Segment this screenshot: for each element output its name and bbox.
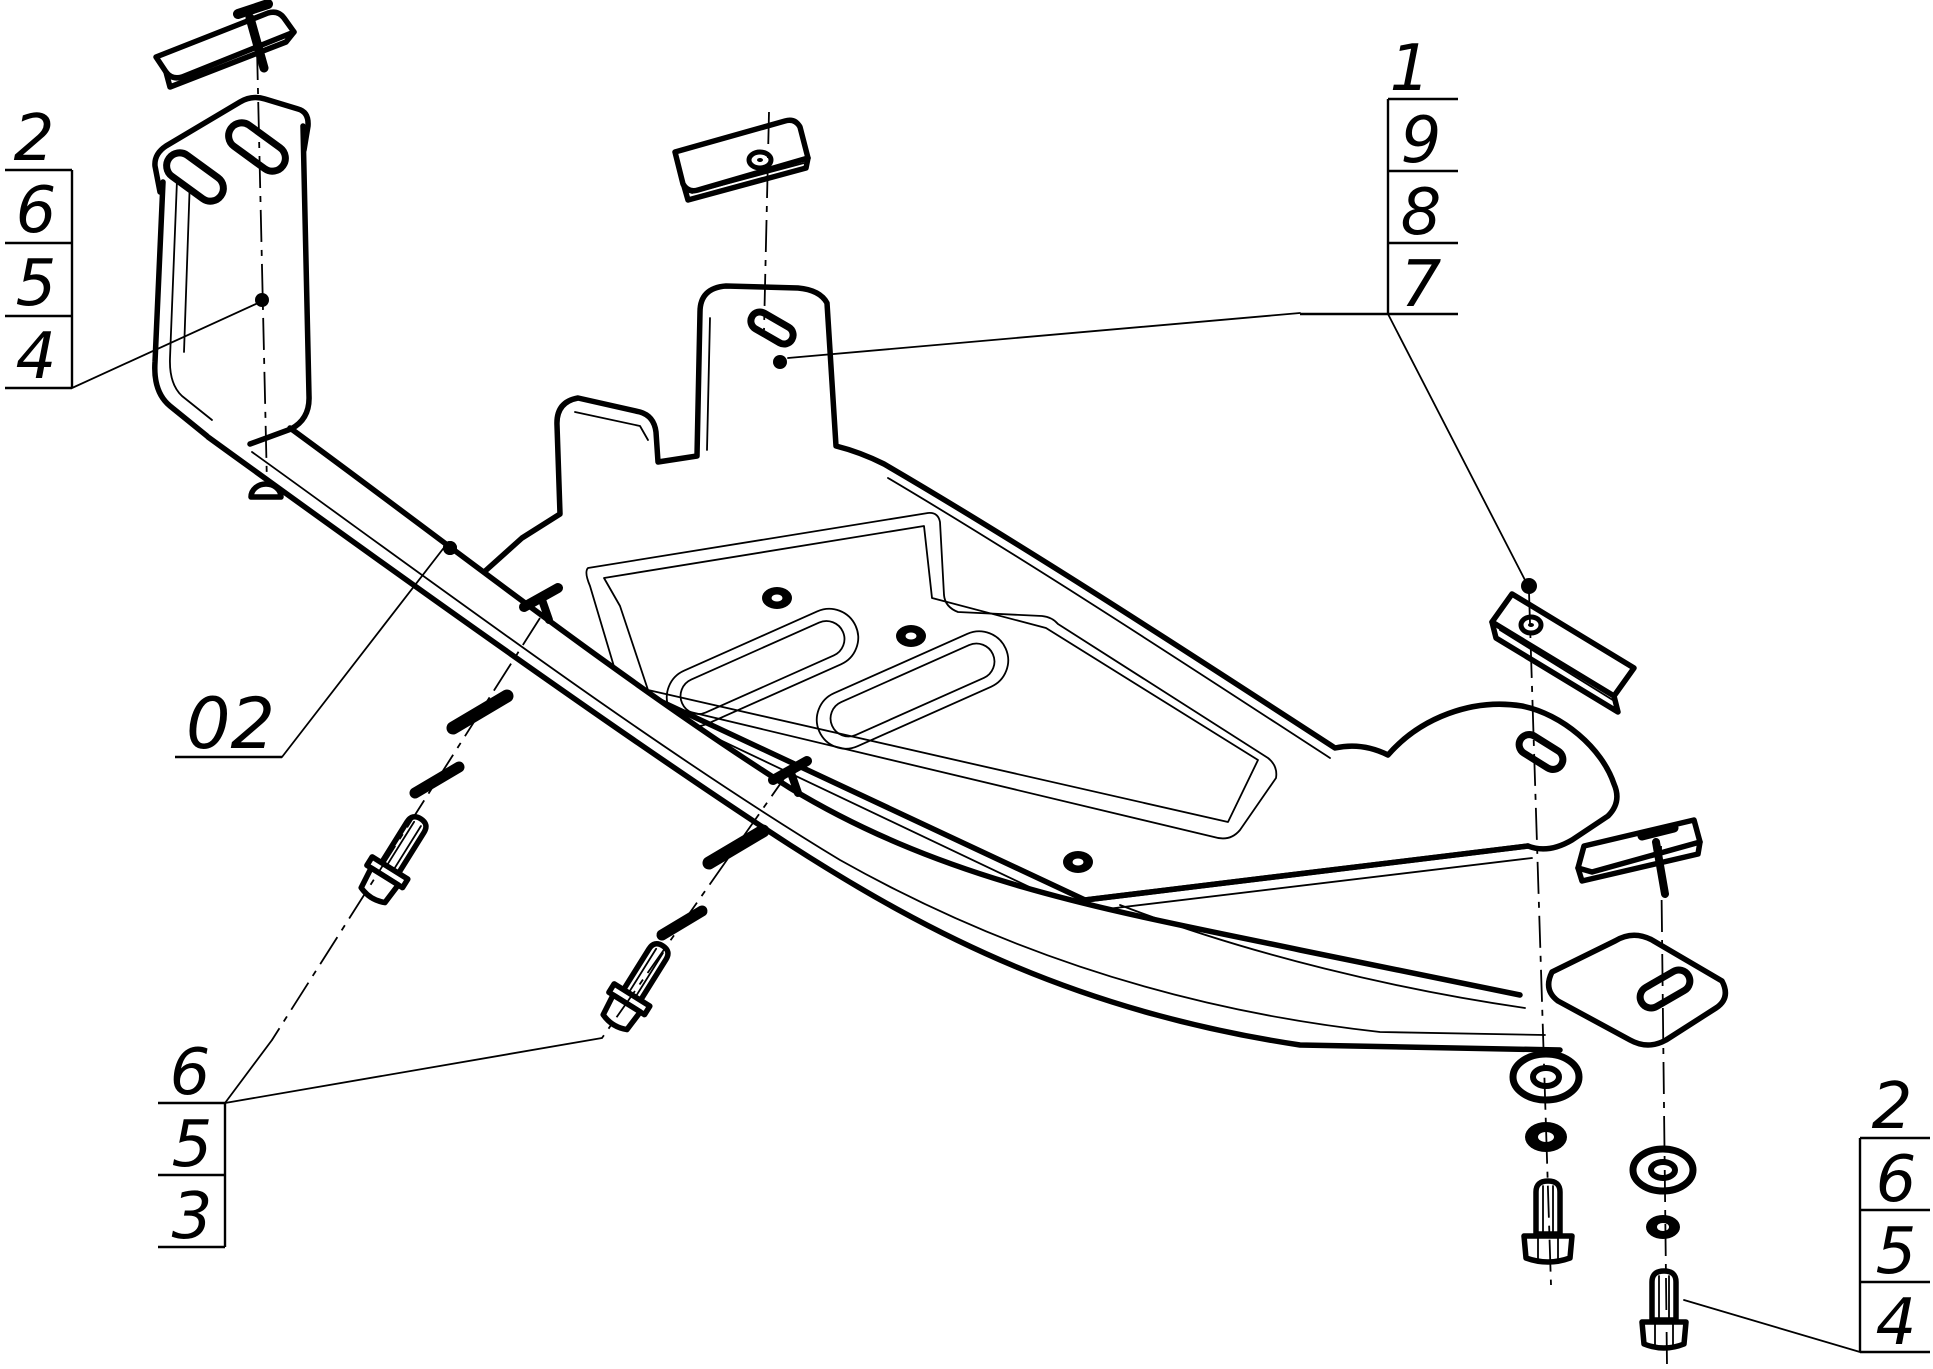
callout-number: 2 (1872, 1070, 1913, 1144)
right-strip-bolt-point (1521, 578, 1537, 594)
assembly-label-text: 02 (186, 683, 275, 765)
callout-number: 6 (170, 1036, 211, 1110)
callout-table-bottom-left: 6 5 3 (158, 1036, 225, 1254)
flat-washer (1633, 1149, 1693, 1191)
callout-number: 6 (1876, 1143, 1917, 1217)
callout-number: 4 (16, 320, 57, 394)
callout-number: 2 (14, 102, 55, 176)
rail-stud-dome (251, 484, 281, 497)
leader-top-left (72, 303, 258, 388)
plate-hole (1063, 851, 1093, 873)
skid-plate-outline (477, 286, 1617, 900)
callout-number: 8 (1401, 176, 1442, 250)
assembly-leader-point (443, 541, 457, 555)
callout-table-top-left: 2 6 5 4 (5, 102, 72, 394)
callout-table-bottom-right: 2 6 5 4 (1860, 1070, 1930, 1360)
left-bracket-inner-line (170, 180, 212, 420)
callout-number: 6 (16, 174, 57, 248)
plate-hole (762, 587, 792, 609)
skid-plate (477, 286, 1617, 912)
callout-number: 4 (1876, 1286, 1917, 1360)
callout-number: 5 (16, 247, 57, 321)
callout-number: 9 (1401, 104, 1442, 178)
clamp-strip-right (1492, 578, 1634, 712)
rail-end-flange (1549, 935, 1726, 1045)
strip-hole (1521, 617, 1541, 633)
plate-hole (896, 625, 926, 647)
leader-top-right-b (1388, 314, 1526, 582)
leader-bottom-left-b (225, 1038, 602, 1103)
flat-washer (1513, 1054, 1579, 1100)
leader-bottom-right (1684, 1300, 1860, 1352)
spring-washer (1646, 1215, 1680, 1239)
left-bracket-right-edge (250, 126, 309, 444)
leader-assembly-label (282, 545, 446, 757)
axis-left-bracket (257, 48, 267, 485)
fastener-set (596, 831, 763, 1036)
left-bracket-left-edge (155, 182, 207, 436)
left-bracket-inner-line2 (184, 178, 190, 352)
fastener-stack (1633, 1149, 1693, 1348)
top-ear-bolt-point (773, 355, 787, 369)
callout-number: 1 (1390, 32, 1431, 106)
assembly-label: 02 (175, 683, 282, 765)
callout-number: 5 (172, 1108, 213, 1182)
left-bracket-slot (161, 148, 228, 207)
hex-bolt (354, 808, 439, 909)
technical-drawing: 2 6 5 4 1 9 8 7 6 5 3 2 6 5 4 (0, 0, 1933, 1369)
drawing-page: 2 6 5 4 1 9 8 7 6 5 3 2 6 5 4 (0, 0, 1933, 1369)
callout-table-top-right: 1 9 8 7 (1300, 32, 1458, 322)
hex-bolt (596, 935, 681, 1036)
callout-number: 7 (1401, 248, 1442, 322)
pin-bracket-right (1578, 820, 1700, 894)
clamp-strip-top-center (675, 120, 808, 200)
fastener-set (354, 696, 507, 909)
callout-number: 3 (172, 1180, 213, 1254)
bolt (1642, 1271, 1686, 1348)
callout-number: 5 (1876, 1215, 1917, 1289)
clamp-strip-top-left (156, 4, 294, 87)
left-bracket-slot (223, 118, 290, 177)
leader-top-right-a (788, 313, 1300, 358)
leader-bottom-left-a (225, 1040, 272, 1103)
fastener-stack (1513, 1054, 1579, 1262)
